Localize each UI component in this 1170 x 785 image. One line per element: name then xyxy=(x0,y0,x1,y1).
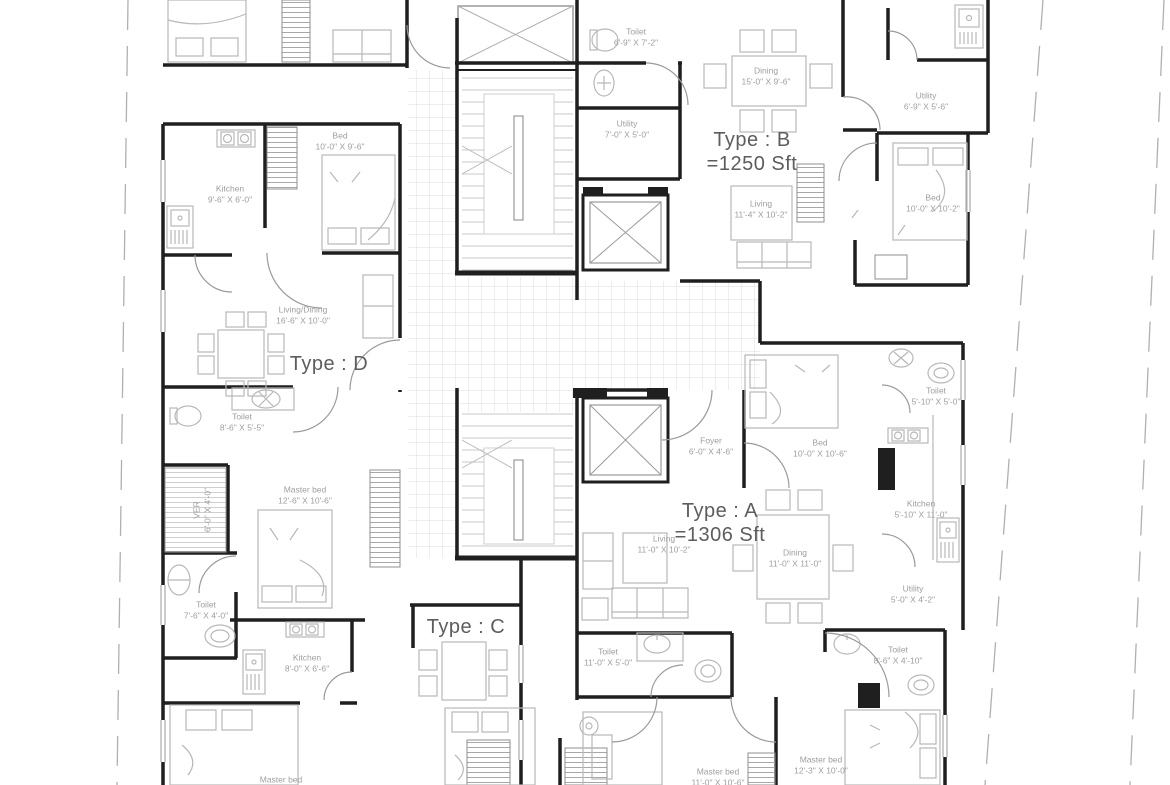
utility-sink-top-right-icon xyxy=(955,5,983,48)
wc-toilet-d-icon xyxy=(170,406,201,426)
bed-top-left-icon xyxy=(168,0,246,62)
unit-label-type-d: Type : D xyxy=(290,352,368,376)
sofa-top-icon xyxy=(333,30,391,62)
wc-toilet-a-icon xyxy=(928,363,954,383)
kitchen-type-c-icon xyxy=(243,622,324,694)
bed-type-b-icon xyxy=(852,143,967,240)
kitchen-type-a-icon xyxy=(888,415,959,562)
wc-toilet-19-icon xyxy=(205,625,235,647)
unit-label-type-b: Type : B=1250 Sft xyxy=(707,128,798,176)
kitchen-type-d-icon xyxy=(167,130,255,248)
bed-type-d-icon xyxy=(322,155,395,250)
floor-plan: Toilet6'-9" X 7'-2" Dining15'-0" X 9'-6"… xyxy=(0,0,1170,785)
verandah-floor xyxy=(165,468,226,552)
bed-master-right-icon xyxy=(845,710,940,785)
site-boundary-lines xyxy=(117,0,1164,785)
wc-toilet-top-icon xyxy=(590,29,618,51)
stairs-top xyxy=(462,78,573,270)
window-marks xyxy=(159,160,972,762)
basin-toilet-21-icon xyxy=(637,633,683,661)
unit-label-type-c: Type : C xyxy=(427,615,505,639)
bed-bottom-left-icon xyxy=(170,705,298,785)
basin-d-icon xyxy=(232,388,294,410)
bed-master-center-icon xyxy=(580,712,662,785)
dining-type-d-icon xyxy=(198,312,284,396)
shower-toilet-19-icon xyxy=(168,565,190,595)
bed-master-d-icon xyxy=(258,510,332,608)
wc-toilet-22-icon xyxy=(908,675,934,695)
stairs-bottom xyxy=(462,414,573,546)
basin-top-icon xyxy=(594,70,614,96)
sofa-type-d-icon xyxy=(363,275,393,338)
wc-toilet-21-icon xyxy=(695,660,721,682)
sofa-type-a-icon xyxy=(582,533,688,620)
floor-plan-drawing xyxy=(0,0,1170,785)
dining-type-b-icon xyxy=(704,30,832,132)
basin-toilet-a-icon xyxy=(889,349,913,367)
elevator-shaft-b xyxy=(583,398,668,482)
unit-label-type-a: Type : A=1306 Sft xyxy=(675,499,766,547)
dining-type-c-icon xyxy=(419,642,507,700)
elevator-shaft-top xyxy=(458,6,573,63)
elevator-shaft-a xyxy=(583,195,668,270)
